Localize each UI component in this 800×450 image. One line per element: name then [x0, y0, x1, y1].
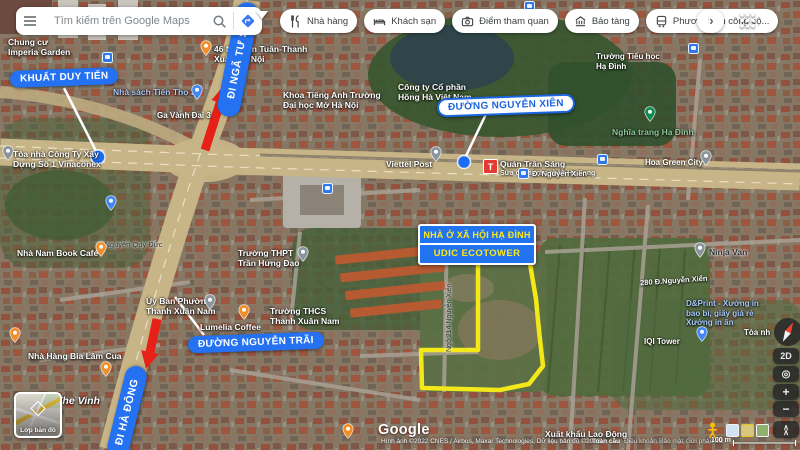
map-label-ga-vanh-dai-3[interactable]: Ga Vành Đai 3: [157, 111, 211, 121]
camera-icon: [461, 15, 474, 28]
poi-pin-dprint-mail[interactable]: [696, 326, 708, 342]
map-label-thpt-tran-hung-dao[interactable]: Trường THPT Trần Hưng Đạo: [238, 248, 299, 268]
map-label-khoa-tieng-anh[interactable]: Khoa Tiếng Anh Trường Đại học Mở Hà Nội: [283, 90, 381, 110]
poi-pin-vinaconex[interactable]: [2, 145, 14, 161]
poi-pin-bia-lam-1[interactable]: [9, 327, 21, 343]
map-label-nguyen-xien-street: Đ. Nguyễn Xiển: [532, 169, 587, 178]
chips-scroll-right-button[interactable]: ⁞ ›: [697, 9, 724, 33]
transit-icon: [655, 15, 668, 28]
transit-icon[interactable]: [688, 43, 699, 54]
search-icon: [212, 14, 227, 29]
footer-link-terms[interactable]: Điều khoản: [624, 438, 657, 445]
map-label-quan-tran-sang[interactable]: Quán Trần Sáng: [500, 159, 565, 169]
chip-label: Nhà hàng: [307, 16, 348, 27]
search-bar[interactable]: [16, 7, 262, 35]
layer-thumbnail-2[interactable]: [741, 424, 754, 437]
map-label-vinaconex[interactable]: Tòa nhà Công Ty Xây Dựng Số 1 Vinaconex: [13, 149, 101, 169]
project-title-line2: UDIC ECOTOWER: [420, 243, 534, 263]
2d-toggle-button[interactable]: 2D: [773, 348, 799, 364]
scale-bar: [733, 439, 796, 447]
red-arrow-down: [141, 318, 161, 369]
poi-pin-cemetery-tree[interactable]: [644, 106, 656, 122]
map-label-toa-nha-partial[interactable]: Tòa nh: [744, 328, 770, 338]
my-location-button[interactable]: ◎: [773, 366, 799, 382]
poi-pin-shop-mid[interactable]: [105, 195, 117, 211]
map-label-dprint[interactable]: D&Print - Xưởng in bao bì, giấy giá rẻ X…: [686, 299, 759, 328]
compass-icon[interactable]: [773, 317, 800, 347]
poi-pin-bia-lam-2[interactable]: [100, 361, 112, 377]
poi-pin-viettel-post[interactable]: [430, 146, 442, 162]
chip-museums[interactable]: Bảo tàng: [565, 9, 639, 33]
hotel-icon: [373, 15, 386, 28]
map-label-imperia-garden[interactable]: Chung cư Imperia Garden: [8, 37, 70, 57]
map-label-nha-sach-tien-tho[interactable]: Nhà sách Tiến Thọ 3: [113, 87, 196, 97]
zoom-out-button[interactable]: −: [773, 401, 799, 417]
map-attribution: Hình ảnh ©2022 CNES / Airbus, Maxar Tech…: [381, 438, 600, 445]
hamburger-menu-button[interactable]: [16, 13, 44, 29]
transit-icon[interactable]: [597, 154, 608, 165]
map-layers-toggle[interactable]: Lớp bản đồ: [14, 392, 62, 438]
map-label-truong-tieu-hoc[interactable]: Trường Tiểu học Hạ Đình: [596, 52, 660, 71]
leader-khuat-duy-tien: [64, 88, 97, 153]
map-label-the-vinh: The Vinh: [56, 395, 100, 408]
transit-icon[interactable]: [322, 183, 333, 194]
bus-stop-icon[interactable]: [518, 168, 529, 179]
poi-pin-thpt-school[interactable]: [297, 246, 309, 262]
poi-pin-nha-nam[interactable]: [95, 241, 107, 257]
google-logo[interactable]: Google: [378, 422, 430, 438]
road-dot-nguyen-xien: [458, 156, 471, 169]
map-label-bia-lam-cua[interactable]: Nhà Hàng Bia Lâm Cua: [28, 351, 122, 361]
chip-label: Điểm tham quan: [479, 16, 549, 27]
project-title-line1: NHÀ Ở XÃ HỘI HẠ ĐÌNH: [420, 226, 534, 243]
annotation-overlay: [0, 0, 800, 450]
apps-grid-icon[interactable]: [739, 12, 756, 29]
map-label-ngo-214: Ngõ 214 Nguyễn Xiển: [446, 284, 454, 353]
map-label-lumelia-coffee[interactable]: Lumelia Coffee: [200, 322, 261, 332]
footer-link-privacy[interactable]: Bảo mật: [659, 438, 683, 445]
search-input[interactable]: [52, 14, 205, 28]
map-label-iqi-tower[interactable]: IQI Tower: [644, 337, 680, 347]
chip-label: Bảo tàng: [592, 16, 630, 27]
scale-label: 100 m: [711, 437, 731, 444]
poi-pin-uy-ban[interactable]: [204, 294, 216, 310]
map-label-ninja-van[interactable]: Ninja Van: [709, 247, 747, 257]
map-label-nghia-trang-ha-dinh[interactable]: Nghĩa trang Hạ Đình: [612, 127, 694, 137]
drag-dots-icon: ⁞: [707, 18, 708, 25]
directions-icon: [239, 12, 257, 30]
google-maps-app: Chung cư Imperia Garden 46 Nguyễn Tuân-T…: [0, 0, 800, 450]
layer-thumbnail-1[interactable]: [726, 424, 739, 437]
map-label-thcs-thanh-xuan-nam[interactable]: Trường THCS Thanh Xuân Nam: [270, 306, 339, 326]
zoom-in-button[interactable]: +: [773, 384, 799, 400]
project-site-outline: [421, 258, 543, 390]
poi-pin-lumelia[interactable]: [238, 304, 250, 320]
map-label-viettel-post[interactable]: Viettel Post: [386, 159, 432, 169]
poi-pin-food-bottom[interactable]: [342, 423, 354, 439]
chip-hotels[interactable]: Khách sạn: [364, 9, 445, 33]
layers-label: Lớp bản đồ: [16, 427, 60, 434]
restaurant-icon: [289, 15, 302, 28]
museum-icon: [574, 15, 587, 28]
poi-pin-46-nguyen-tuan[interactable]: [200, 40, 212, 56]
poi-pin-nha-sach[interactable]: [191, 84, 203, 100]
map-label-green-city[interactable]: Hoa Green City: [645, 158, 703, 168]
poi-pin-ninja-van[interactable]: [694, 242, 706, 258]
double-chevron-up-icon: ∧∧: [783, 425, 789, 435]
leader-nguyen-xien: [465, 112, 487, 158]
chip-label: Khách sạn: [391, 16, 436, 27]
viettel-post-icon[interactable]: T: [483, 159, 498, 174]
poi-pin-road-right[interactable]: [700, 150, 712, 166]
collapse-controls-button[interactable]: ∧∧: [773, 421, 799, 438]
chip-restaurants[interactable]: Nhà hàng: [280, 9, 357, 33]
chevron-right-icon: ›: [709, 13, 713, 28]
layer-thumbnail-3[interactable]: [756, 424, 769, 437]
transit-icon[interactable]: [102, 52, 113, 63]
annotation-udic-ecotower: NHÀ Ở XÃ HỘI HẠ ĐÌNH UDIC ECOTOWER: [418, 224, 536, 265]
search-button[interactable]: [205, 14, 233, 29]
map-label-nha-nam-book-cafe[interactable]: Nhà Nam Book Café: [17, 248, 98, 258]
chip-attractions[interactable]: Điểm tham quan: [452, 9, 558, 33]
footer-link-global[interactable]: Toàn cầu: [592, 438, 620, 445]
hamburger-icon: [22, 13, 38, 29]
dropdown-arrow[interactable]: [256, 11, 268, 19]
